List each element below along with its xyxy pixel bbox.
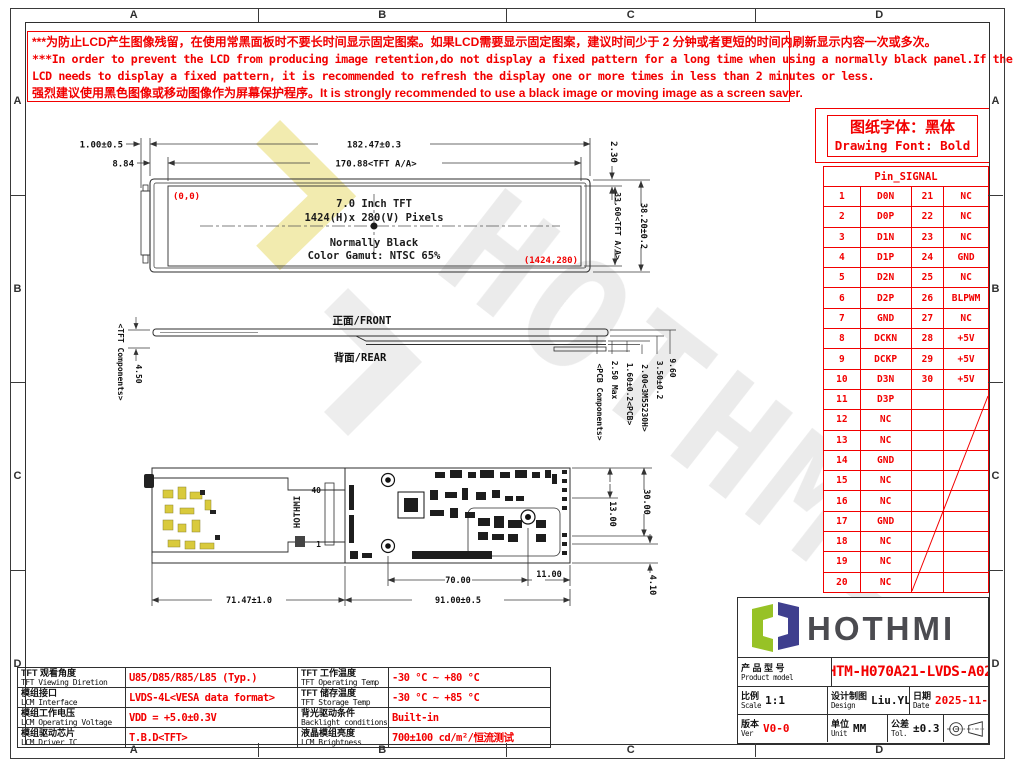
pin-signal-right [944,410,989,430]
pin-signal-right: +5V [944,349,989,369]
pin-number-left: 7 [824,308,861,328]
pin-signal-left: NC [860,430,911,450]
pin-row: 14 GND [824,450,989,470]
pin-row: 17 GND [824,511,989,531]
pin-number-left: 1 [824,187,861,207]
pin-number-right: 21 [911,187,944,207]
dim-tft-components: <TFT Components> [116,323,125,400]
spec-value-2: Built-in [389,708,551,728]
pin-signal-left: NC [860,471,911,491]
pin-number-left: 4 [824,247,861,267]
spec-label-1: 模组工作电压 LCM Operating Voltage [18,708,126,728]
font-note-cn: 图纸字体：黑体 [835,118,970,137]
pin-signal-right: NC [944,207,989,227]
spec-value-1: LVDS-4L<VESA data format> [126,688,298,708]
pin-signal-right: BLPWM [944,288,989,308]
engineering-drawing-sheet: { "frame": {"letters": ["A", "B", "C", "… [0,0,1014,766]
spec-label-2: TFT 储存温度 TFT Storage Temp [298,688,389,708]
spec-label-2: TFT 工作温度 TFT Operating Temp [298,668,389,688]
rear-face-label: 背面/REAR [334,351,387,364]
spec-row: 模组接口 LCM Interface LVDS-4L<VESA data for… [18,688,551,708]
pin-signal-left: D2P [860,288,911,308]
pin-number-right: 23 [911,227,944,247]
pin-number-right [911,450,944,470]
pin-number-right: 25 [911,268,944,288]
pin-row: 12 NC [824,410,989,430]
pin-row: 6 D2P 26 BLPWM [824,288,989,308]
pin-signal-table: Pin_SIGNAL 1 D0N 21 NC 2 D0P 22 NC [823,166,989,593]
pin-signal-right: NC [944,268,989,288]
drawing-font-note: 图纸字体：黑体 Drawing Font: Bold [815,108,990,163]
dim-tab: 1.00±0.5 [80,141,123,151]
pin-row: 13 NC [824,430,989,450]
pin-number-right [911,532,944,552]
dim-350: 3.50±0.2 [655,361,664,400]
pin-number-left: 13 [824,430,861,450]
tolerance-cell: 公差Tol. ±0.3 [888,715,944,742]
pin-number-right: 30 [911,369,944,389]
pin-signal-right [944,552,989,572]
hothmi-logo-text: HOTHMI [807,610,955,647]
dim-aa-width: 170.88<TFT A/A> [335,160,417,170]
spec-value-1: U85/D85/R85/L85 (Typ.) [126,668,298,688]
pin-signal-right: GND [944,247,989,267]
scale-value: 1:1 [765,694,785,707]
panel-gamut-label: Color Gamut: NTSC 65% [308,250,441,262]
pin-number-left: 16 [824,491,861,511]
flex-components-dark [200,490,220,540]
pin-signal-right [944,572,989,592]
pin-number-left: 20 [824,572,861,592]
pin-number-right: 29 [911,349,944,369]
front-face-label: 正面/FRONT [333,315,392,327]
hothmi-logo-mark [752,602,799,652]
pin-number-right [911,471,944,491]
dim-holes-width: 70.00 [445,576,471,586]
pin-signal-right [944,471,989,491]
pin-row: 19 NC [824,552,989,572]
dim-overall-height: 38.20±0.2 [638,203,648,249]
pin-row: 4 D1P 24 GND [824,247,989,267]
dim-pcb-width: 91.00±0.5 [435,596,481,606]
pin-number-right: 24 [911,247,944,267]
version-value: V0-0 [763,722,790,735]
rear-logo-text: HOTHMI [293,496,303,529]
scale-cell: 比例Scale 1:1 [738,687,828,714]
pin-row: 2 D0P 22 NC [824,207,989,227]
pin-row: 11 D3P [824,389,989,409]
pin-number-right: 26 [911,288,944,308]
font-note-en: Drawing Font: Bold [835,137,970,154]
panel-resolution-label: 1424(H)x 280(V) Pixels [304,212,443,224]
warning-line-en2: LCD needs to display a fixed pattern, it… [32,68,785,85]
warning-line-cn1: ***为防止LCD产生图像残留，在使用常黑面板时不要长时间显示固定图案。如果LC… [32,34,785,51]
pin-signal-right: NC [944,187,989,207]
dim-30: 30.00 [641,489,651,515]
dim-flex-width: 71.47±1.0 [226,596,272,606]
spec-table: TFT 观看角度 TFT Viewing Diretion U85/D85/R8… [17,667,550,744]
pin-signal-left: D3N [860,369,911,389]
pin-row: 18 NC [824,532,989,552]
title-block: HOTHMI 产 品 型 号 Product model HTM-H070A21… [737,597,989,744]
corner-coordinate: (1424,280) [524,256,578,266]
design-cell: 设计制图Design Liu.YL [828,687,910,714]
dim-960: 9.60 [668,358,677,377]
pin-number-right: 28 [911,329,944,349]
pin-number-left: 5 [824,268,861,288]
pin-number-left: 9 [824,349,861,369]
pin-number-right [911,572,944,592]
connector-pin40-label: 40 [311,486,321,495]
pin-number-left: 2 [824,207,861,227]
rear-view-dimensions [152,468,658,606]
pin-number-left: 10 [824,369,861,389]
warning-line-cn2: 强烈建议使用黑色图像或移动图像作为屏幕保护程序。It is strongly r… [32,85,785,102]
pin-number-left: 6 [824,288,861,308]
flex-connector [144,474,154,488]
spec-row: TFT 观看角度 TFT Viewing Diretion U85/D85/R8… [18,668,551,688]
spec-label-2: 背光驱动条件 Backlight conditions [298,708,389,728]
pin-row: 16 NC [824,491,989,511]
dim-13: 13.00 [607,501,617,527]
dim-pcb-components: <PCB Components> [595,363,604,440]
dim-tape-thickness: 2.00<3M55230H> [640,364,649,432]
spec-value-2: 700±100 cd/m²/恒流测试 [389,728,551,748]
date-value: 2025-11-19 [935,694,988,707]
dim-pcb-thickness: 1.60±0.2<PCB> [625,363,634,426]
pin-signal-right [944,511,989,531]
pin-number-right [911,430,944,450]
pin-signal-left: NC [860,410,911,430]
pin-signal-left: D1N [860,227,911,247]
spec-value-2: -30 °C ~ +85 °C [389,688,551,708]
pin-row: 10 D3N 30 +5V [824,369,989,389]
pin-signal-left: GND [860,450,911,470]
dim-top-edge: 2.30 [608,141,618,163]
pin-signal-right [944,532,989,552]
pin-row: 7 GND 27 NC [824,308,989,328]
spec-value-2: -30 °C ~ +80 °C [389,668,551,688]
date-cell: 日期Date 2025-11-19 [910,687,988,714]
pin-signal-right: NC [944,308,989,328]
pin-signal-left: D3P [860,389,911,409]
pin-signal-left: NC [860,532,911,552]
design-value: Liu.YL [871,694,910,707]
pin-signal-left: D2N [860,268,911,288]
pin-row: 9 DCKP 29 +5V [824,349,989,369]
dim-250max: 2.50 Max [610,361,619,400]
pin-number-left: 11 [824,389,861,409]
pin-signal-left: GND [860,308,911,328]
pin-signal-left: DCKP [860,349,911,369]
pin-row: 20 NC [824,572,989,592]
pin-signal-right: +5V [944,329,989,349]
pin-signal-right [944,389,989,409]
pin-number-right [911,511,944,531]
projection-symbol [944,715,988,742]
pin-signal-left: NC [860,491,911,511]
pin-number-left: 14 [824,450,861,470]
pin-signal-left: NC [860,552,911,572]
pin-number-right: 22 [911,207,944,227]
pin-signal-right [944,430,989,450]
pin-number-right [911,410,944,430]
tolerance-value: ±0.3 [913,722,940,735]
pin-number-left: 3 [824,227,861,247]
pin-row: 15 NC [824,471,989,491]
pin-signal-left: NC [860,572,911,592]
spec-label-1: 模组驱动芯片 LCM Driver IC [18,728,126,748]
dim-tft-height: 4.50 [134,364,143,383]
rear-view [152,468,570,563]
pin-number-left: 12 [824,410,861,430]
origin-coordinate: (0,0) [173,192,200,202]
dim-410: 4.10 [647,575,657,595]
pin-number-right [911,389,944,409]
pin-signal-right [944,450,989,470]
rear-logo-mark [295,536,305,547]
pin-number-left: 8 [824,329,861,349]
pin-signal-left: D0P [860,207,911,227]
connector-pin1-label: 1 [316,540,321,549]
pin-number-left: 18 [824,532,861,552]
product-model-label: 产 品 型 号 Product model [738,658,832,686]
dim-aa-height: 33.60<TFT A/A> [613,192,622,260]
spec-label-1: 模组接口 LCM Interface [18,688,126,708]
pin-signal-left: GND [860,511,911,531]
dim-overall-width: 182.47±0.3 [347,141,401,151]
spec-value-1: T.B.D<TFT> [126,728,298,748]
pin-signal-left: D0N [860,187,911,207]
panel-size-label: 7.0 Inch TFT [336,198,412,210]
spec-row: 模组工作电压 LCM Operating Voltage VDD = +5.0±… [18,708,551,728]
pin-table-title: Pin_SIGNAL [824,167,989,187]
flex-components [163,487,214,549]
pin-number-left: 15 [824,471,861,491]
pin-number-right: 27 [911,308,944,328]
product-model-value: HTM-H070A21-LVDS-A02 [832,658,988,686]
pin-row: 8 DCKN 28 +5V [824,329,989,349]
retention-warning-box: ***为防止LCD产生图像残留，在使用常黑面板时不要长时间显示固定图案。如果LC… [27,31,790,102]
pin-row: 1 D0N 21 NC [824,187,989,207]
pin-signal-right [944,491,989,511]
unit-cell: 单位Unit MM [828,715,888,742]
spec-label-1: TFT 观看角度 TFT Viewing Diretion [18,668,126,688]
spec-label-2: 液晶模组亮度 LCM Brightness [298,728,389,748]
pin-signal-left: D1P [860,247,911,267]
unit-value: MM [853,722,866,735]
pin-signal-left: DCKN [860,329,911,349]
pin-number-left: 19 [824,552,861,572]
pin-number-left: 17 [824,511,861,531]
warning-line-en1: ***In order to prevent the LCD from prod… [32,51,785,68]
pin-row: 3 D1N 23 NC [824,227,989,247]
pin-row: 5 D2N 25 NC [824,268,989,288]
company-logo: HOTHMI [738,598,988,657]
spec-value-1: VDD = +5.0±0.3V [126,708,298,728]
pin-number-right [911,552,944,572]
dim-offset: 8.84 [112,160,134,170]
version-cell: 版本Ver V0-0 [738,715,828,742]
spec-row: 模组驱动芯片 LCM Driver IC T.B.D<TFT> 液晶模组亮度 L… [18,728,551,748]
pin-signal-right: NC [944,227,989,247]
panel-mode-label: Normally Black [330,237,419,249]
pin-number-right [911,491,944,511]
pin-signal-right: +5V [944,369,989,389]
dim-right-width: 11.00 [536,570,562,580]
